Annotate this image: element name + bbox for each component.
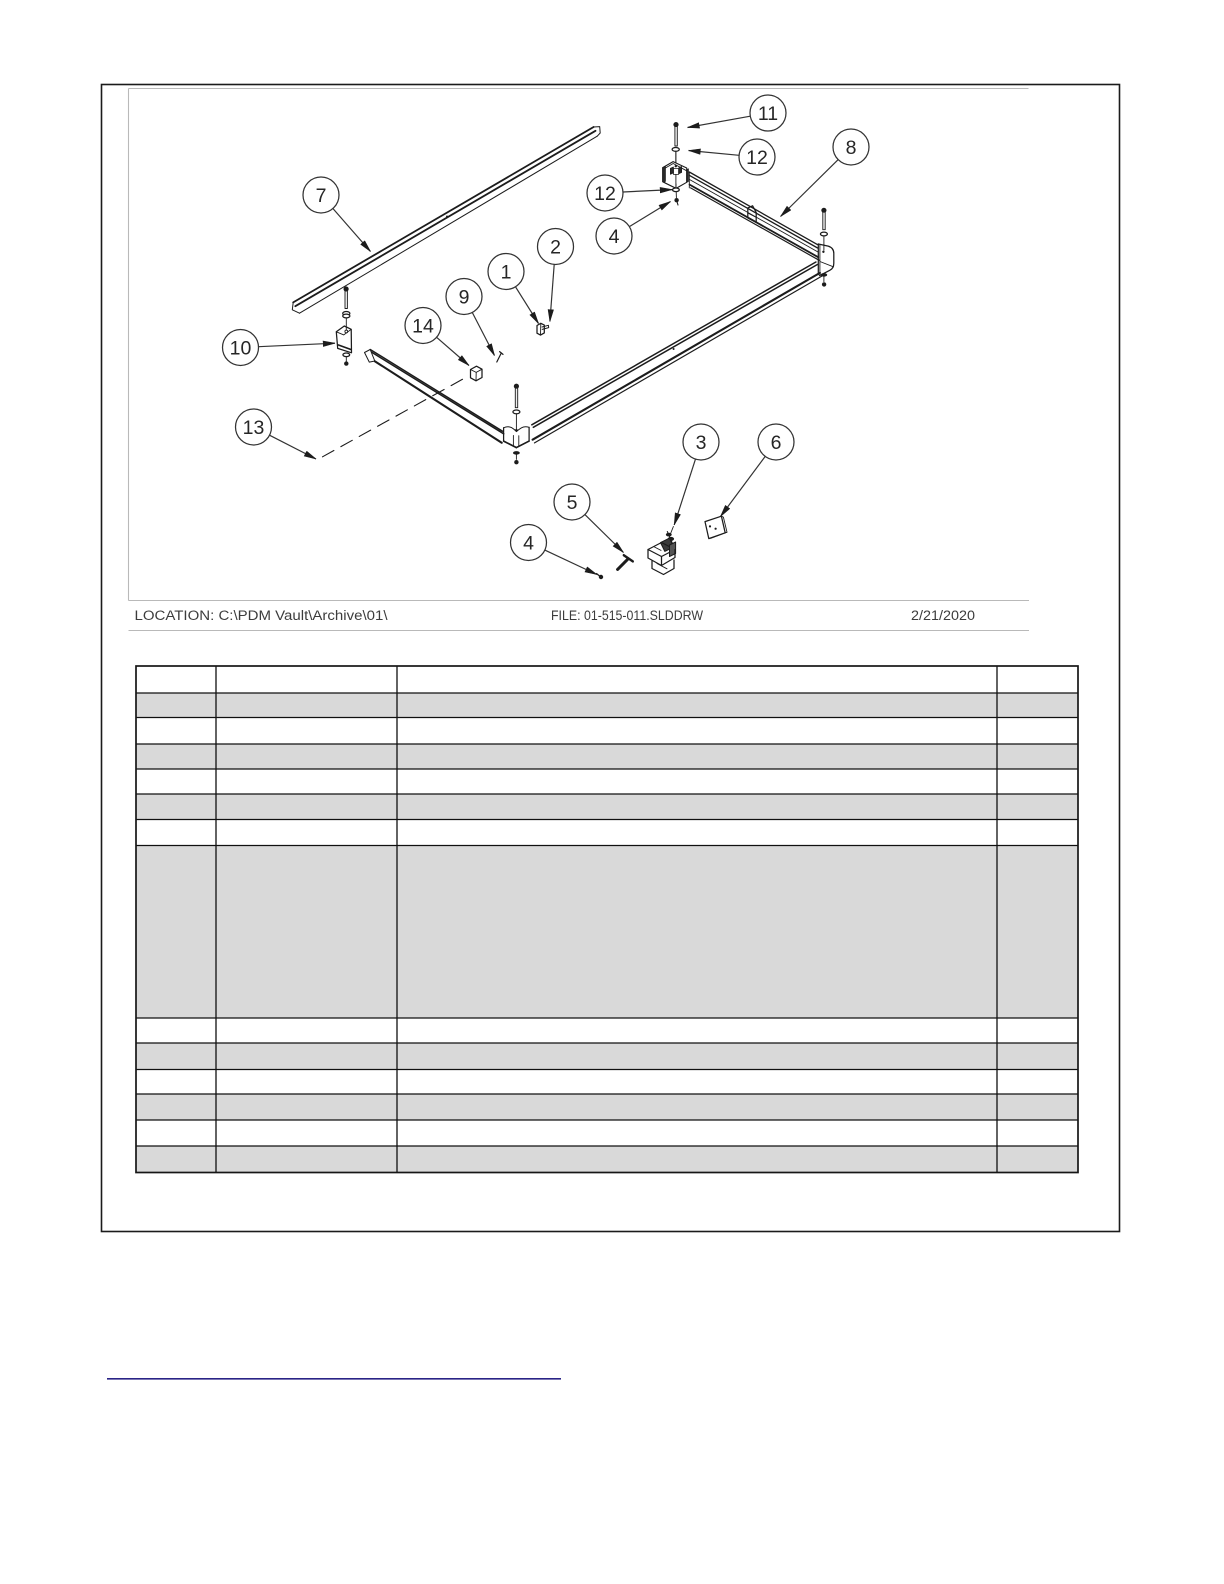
svg-text:13: 13 [243, 417, 265, 439]
svg-text:12: 12 [746, 147, 768, 169]
svg-text:LOCATION: C:\PDM Vault\Archive: LOCATION: C:\PDM Vault\Archive\01\ [135, 608, 388, 624]
svg-text:11: 11 [758, 103, 778, 125]
svg-text:2: 2 [550, 237, 561, 259]
svg-text:5: 5 [567, 492, 578, 514]
svg-text:FILE: 01-515-011.SLDDRW: FILE: 01-515-011.SLDDRW [551, 608, 704, 624]
svg-text:4: 4 [523, 533, 534, 555]
svg-text:10: 10 [230, 338, 252, 360]
svg-text:9: 9 [459, 287, 470, 309]
svg-text:4: 4 [609, 226, 620, 248]
svg-text:12: 12 [594, 183, 616, 205]
svg-text:2/21/2020: 2/21/2020 [911, 608, 975, 624]
svg-text:8: 8 [846, 137, 857, 159]
svg-text:1: 1 [501, 262, 512, 284]
svg-text:14: 14 [412, 316, 434, 338]
svg-text:7: 7 [316, 185, 327, 207]
svg-text:6: 6 [771, 432, 782, 454]
svg-text:3: 3 [696, 432, 707, 454]
